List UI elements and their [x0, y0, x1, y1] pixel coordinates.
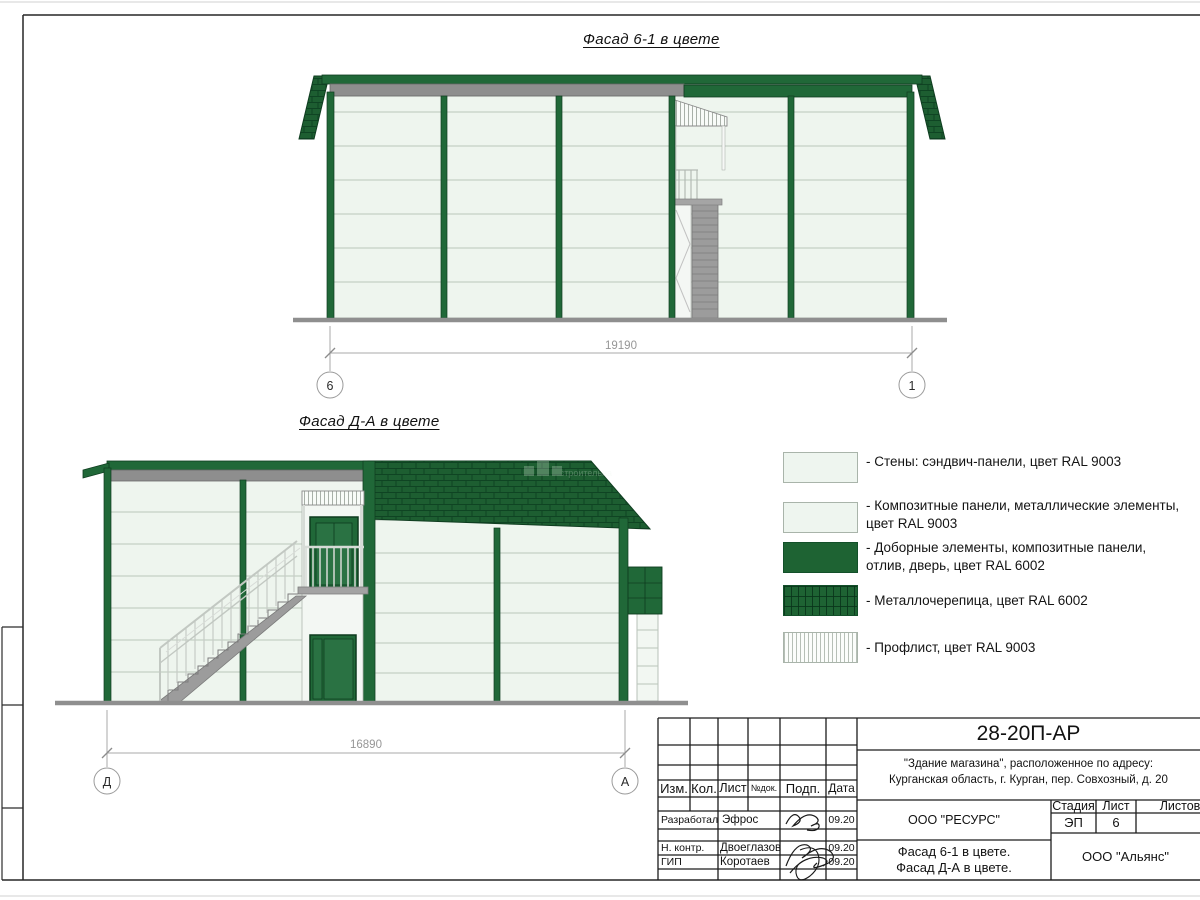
tb-drawing-title-2: Фасад Д-А в цвете. [857, 860, 1051, 875]
legend-label: - Стены: сэндвич-панели, цвет RAL 9003 [866, 453, 1121, 471]
drawing-sheet: 19190 6 1 [0, 0, 1200, 900]
stair-tower [298, 491, 368, 702]
roof-gable-right [915, 76, 945, 139]
svg-text:1: 1 [909, 379, 916, 393]
tb-col-ndok: №док. [748, 780, 780, 797]
tb-role-ncontr: Н. контр. [661, 841, 704, 855]
tb-sheets-label: Листов [1136, 800, 1200, 813]
tb-org-client: ООО "Альянс" [1051, 833, 1200, 880]
legend-label: - Доборные элементы, композитные панели,… [866, 539, 1146, 575]
legend-swatch-walls [783, 452, 858, 483]
tb-sheet-value: 6 [1096, 813, 1136, 833]
facade-d-a-title: Фасад Д-А в цвете [299, 413, 439, 430]
facade-d-a-view: строительна [55, 461, 688, 794]
tb-col-list: Лист [718, 780, 748, 797]
tb-col-kol: Кол. [690, 780, 718, 797]
legend-swatch-proflist [783, 632, 858, 663]
tb-role-gip: ГИП [661, 856, 682, 869]
tb-stage-label: Стадия [1051, 800, 1096, 813]
tb-col-podp: Подп. [780, 780, 826, 797]
legend-label: - Композитные панели, металлические элем… [866, 497, 1179, 533]
tb-doc-number: 28-20П-АР [857, 718, 1200, 750]
axis-marker-d: Д [94, 768, 120, 794]
tb-date: 09.20 [826, 812, 857, 828]
tb-col-izm: Изм. [658, 780, 690, 797]
tb-drawing-title-1: Фасад 6-1 в цвете. [857, 844, 1051, 859]
facade-6-1-title: Фасад 6-1 в цвете [583, 31, 720, 48]
left-margin-boxes [2, 627, 23, 880]
tb-address-line1: "Здание магазина", расположенное по адре… [857, 758, 1200, 770]
dimension-value: 16890 [350, 739, 382, 751]
tb-date: 09.20 [826, 841, 857, 855]
legend-label: - Металлочерепица, цвет RAL 6002 [866, 592, 1088, 610]
axis-marker-a: А [612, 768, 638, 794]
svg-text:Д: Д [103, 775, 112, 789]
svg-text:строительна: строительна [560, 468, 612, 478]
svg-text:6: 6 [327, 379, 334, 393]
axis-marker-1: 1 [899, 372, 925, 398]
tb-role-developed: Разработал [661, 812, 718, 828]
tb-name-dvoeglazov: Двоеглазов [720, 841, 781, 855]
tb-sheet-label: Лист [1096, 800, 1136, 813]
facade-6-1-view: 19190 6 1 [293, 75, 947, 398]
tb-address-line2: Курганская область, г. Курган, пер. Совх… [857, 774, 1200, 786]
svg-text:А: А [621, 775, 630, 789]
tb-name-korotaev: Коротаев [720, 856, 770, 869]
legend-swatch-composite [783, 502, 858, 533]
tb-stage-value: ЭП [1051, 813, 1096, 833]
legend-label: - Профлист, цвет RAL 9003 [866, 639, 1035, 657]
tb-date: 09.20 [826, 856, 857, 869]
dimension-value: 19190 [605, 340, 637, 352]
signature-efros [786, 815, 819, 831]
legend-swatch-metal-tile [783, 585, 858, 616]
legend-swatch-green-elements [783, 542, 858, 573]
right-side-sign [628, 567, 662, 701]
roof-gable-left [299, 76, 329, 139]
axis-marker-6: 6 [317, 372, 343, 398]
tb-name-efros: Эфрос [722, 812, 758, 828]
tb-org-design: ООО "РЕСУРС" [857, 800, 1051, 840]
tb-col-data: Дата [826, 780, 857, 797]
